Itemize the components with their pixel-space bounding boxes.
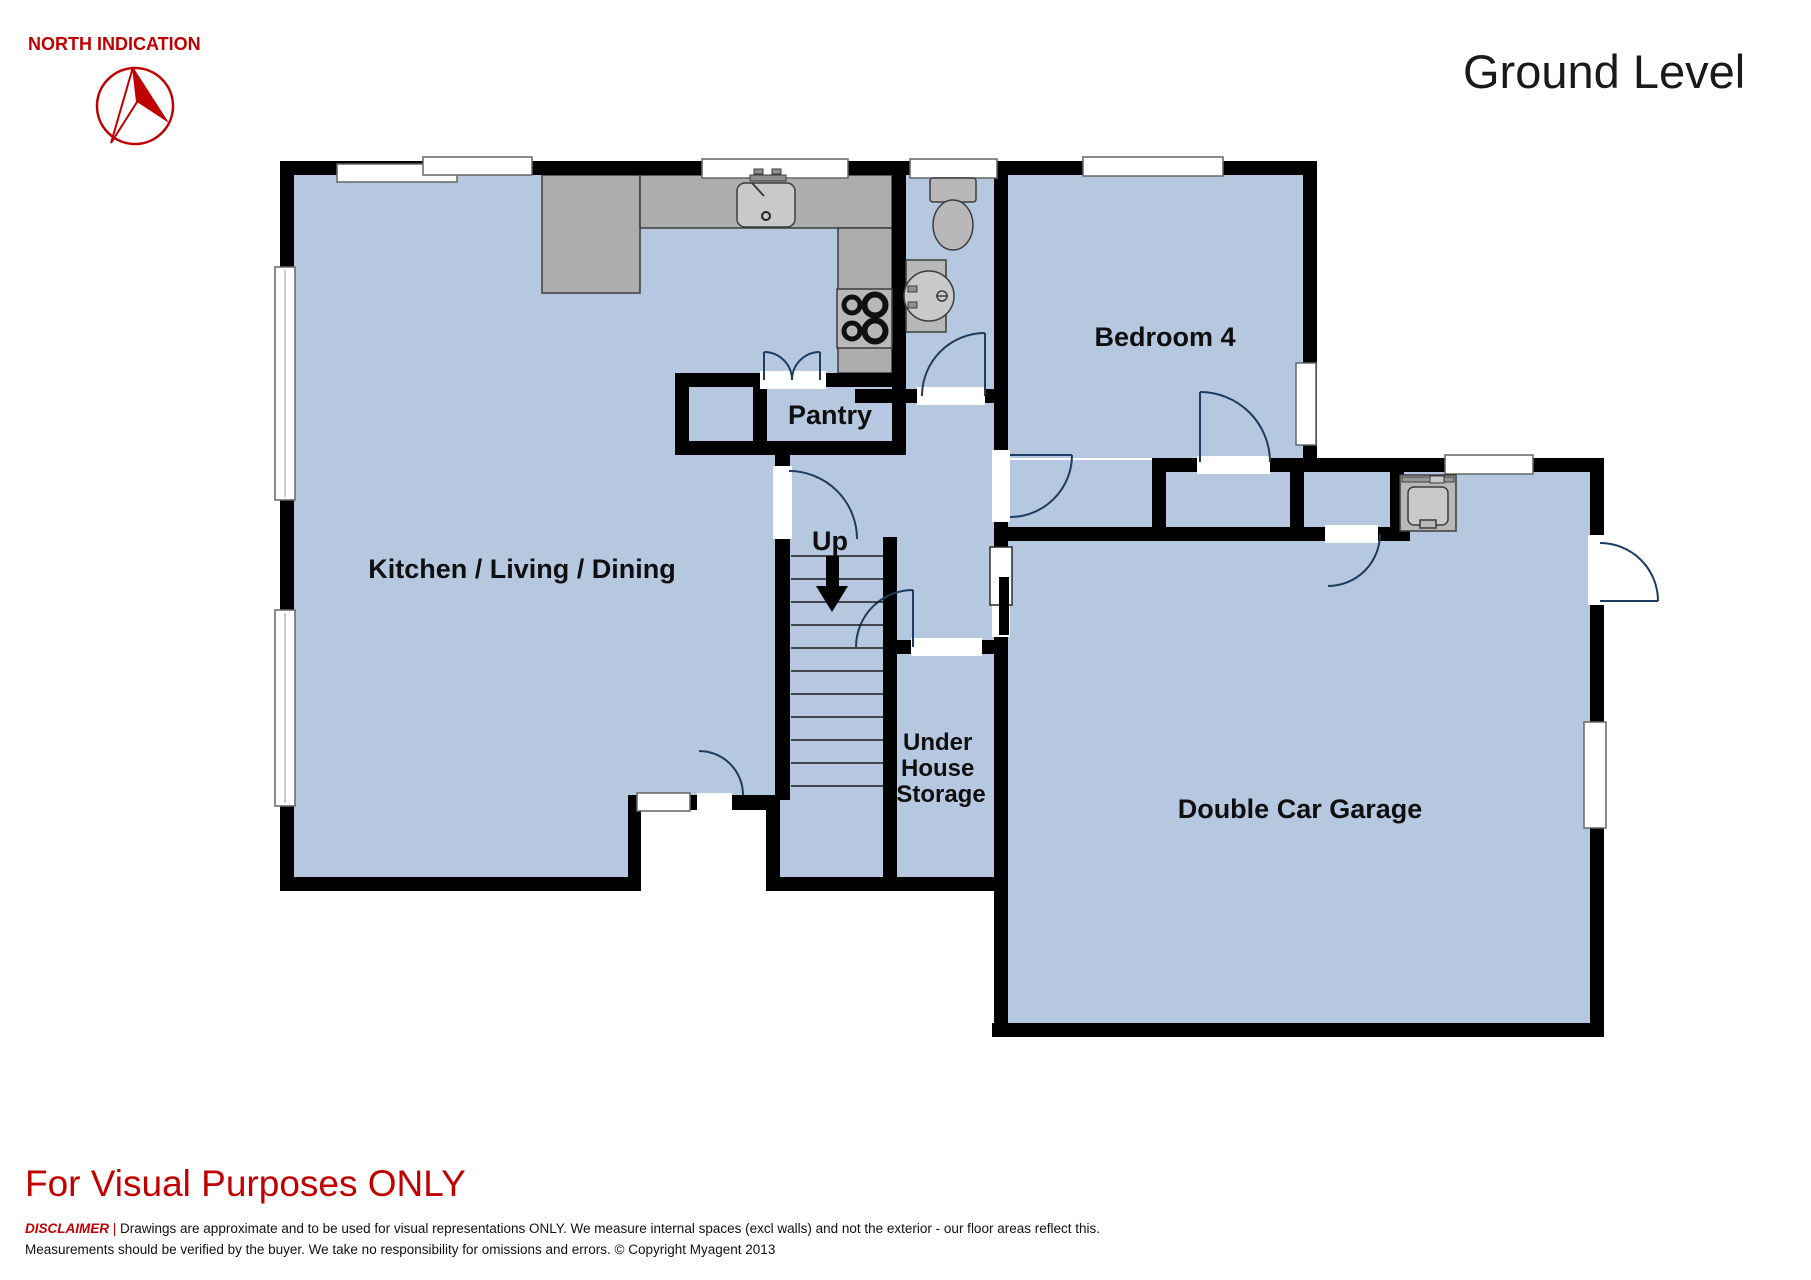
room-label-pantry: Pantry (788, 400, 872, 430)
north-indication-label: NORTH INDICATION (28, 34, 201, 54)
disclaimer-line-2: Measurements should be verified by the b… (25, 1242, 775, 1257)
stairs-up-label: Up (812, 526, 848, 556)
page-title: Ground Level (1463, 45, 1745, 98)
stove-icon (837, 289, 892, 348)
north-compass-icon (97, 67, 173, 144)
disclaimer-line-1: DISCLAIMER | Drawings are approximate an… (25, 1221, 1100, 1236)
laundry-tub-icon (1400, 475, 1456, 531)
toilet-icon (930, 178, 976, 250)
floor-plan-page: NORTH INDICATION Ground Level (0, 0, 1811, 1280)
visual-purposes-notice: For Visual Purposes ONLY (25, 1163, 466, 1204)
room-label-bedroom4: Bedroom 4 (1094, 322, 1235, 352)
room-label-garage: Double Car Garage (1178, 794, 1423, 824)
room-label-kitchen-living-dining: Kitchen / Living / Dining (368, 554, 676, 584)
room-label-under-house-storage: Under House Storage (896, 729, 985, 808)
floor-plan-svg: NORTH INDICATION Ground Level (0, 0, 1811, 1280)
bathroom-basin-icon (904, 260, 954, 332)
